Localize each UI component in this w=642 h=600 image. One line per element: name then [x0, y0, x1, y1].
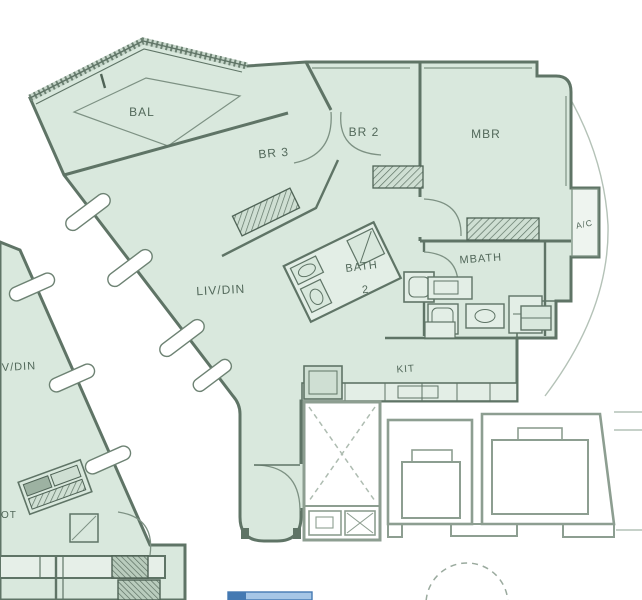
label-adjacent-living-dining: V/DIN: [2, 360, 37, 374]
scale-bar: [228, 592, 312, 600]
store-pocket: [521, 306, 551, 330]
label-bedroom3: BR 3: [258, 145, 290, 162]
staircase: [304, 402, 380, 540]
mbath-wc: [466, 304, 504, 328]
floor-plan-svg: BAL BR 3 BR 2 MBR LIV/DIN BATH 2 MBATH K…: [0, 0, 642, 600]
label-balcony: BAL: [129, 105, 155, 119]
label-bedroom2: BR 2: [349, 125, 380, 139]
label-master-bedroom: MBR: [471, 127, 501, 141]
label-bath2-line2: 2: [361, 284, 370, 297]
label-adjacent-kitchen: OT: [1, 510, 17, 521]
kitchen-cabinet: [425, 322, 455, 338]
label-living-dining: LIV/DIN: [196, 282, 246, 299]
lift-1: [388, 420, 472, 524]
label-kitchen: KIT: [396, 363, 415, 375]
br2-wardrobe: [373, 166, 423, 188]
lobby-wall-stubs: [388, 524, 614, 537]
dashed-circle: [426, 563, 508, 600]
lift-2: [482, 414, 614, 524]
lift-lobby: [304, 402, 614, 540]
mbath-vanity: [428, 277, 472, 299]
floor-plan-page: BAL BR 3 BR 2 MBR LIV/DIN BATH 2 MBATH K…: [0, 0, 642, 600]
mbr-wardrobe: [467, 218, 539, 240]
